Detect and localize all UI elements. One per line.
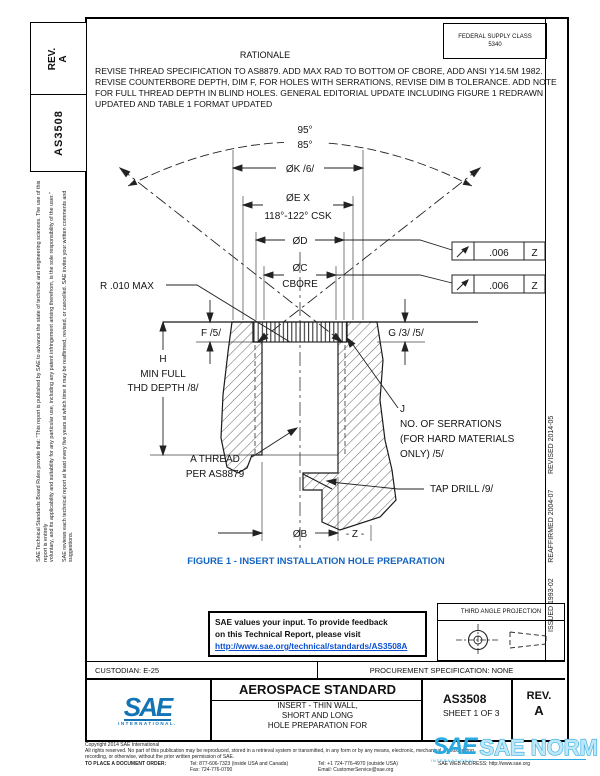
rationale-line: REVISE THREAD SPECIFICATION TO AS8879. A… (95, 66, 557, 77)
info-row: CUSTODIAN: E-25 PROCUREMENT SPECIFICATIO… (85, 661, 565, 679)
left-material-block (221, 322, 262, 473)
rationale-paragraph: REVISE THREAD SPECIFICATION TO AS8879. A… (95, 66, 557, 110)
figure-caption: FIGURE 1 - INSERT INSTALLATION HOLE PREP… (85, 556, 547, 567)
disclaimer-line: voluntary, and its applicability and sui… (49, 170, 56, 562)
fax: Fax: 724-776-0790 (190, 767, 318, 773)
left-margin-disclaimer: SAE Technical Standards Board Rules prov… (36, 170, 75, 562)
angle-dimension: 95° 85° (128, 121, 472, 186)
dia-k-label: ØK /6/ (286, 164, 315, 175)
revision-label: REV. (513, 690, 565, 703)
rev-box: REV. A (30, 22, 87, 96)
runout-arrow-icon (462, 247, 468, 253)
order-label: TO PLACE A DOCUMENT ORDER: (85, 761, 190, 773)
datum-z-label: - Z - (346, 529, 364, 540)
revision-cell: REV. A (513, 680, 565, 718)
rationale-title: RATIONALE (95, 50, 435, 60)
serrations-note: ONLY) /5/ (400, 449, 444, 460)
g-dim-label: G /3/ /5/ (388, 328, 424, 339)
sae-logo-text: SAE (124, 695, 171, 721)
email: Email: CustomerService@sae.org (318, 767, 438, 773)
sae-logo-subtext: INTERNATIONAL. (118, 721, 177, 726)
doc-number-side: AS3508 (52, 110, 64, 156)
custodian-cell: CUSTODIAN: E-25 (85, 662, 318, 679)
rationale-line: UPDATED AND TABLE 1 FORMAT UPDATED (95, 99, 557, 110)
rationale-line: FOR FULL THREAD DEPTH IN BLIND HOLES. GE… (95, 88, 557, 99)
fcf-value: .006 (489, 281, 509, 292)
document-number: AS3508 (443, 692, 523, 707)
figure-drawing: 95° 85° (85, 112, 547, 604)
tap-drill-label: TAP DRILL /9/ (430, 484, 493, 495)
h-dim-label: H (159, 354, 166, 365)
sae-logo: SAE INTERNATIONAL. (85, 680, 210, 740)
rev-label: REV. (47, 48, 58, 70)
watermark-text: SAE NORM (479, 738, 598, 758)
radius-max-label: R .010 MAX (100, 281, 154, 292)
title-block: SAE INTERNATIONAL. AEROSPACE STANDARD IN… (85, 678, 565, 740)
runout-arrow-icon (462, 280, 468, 286)
serration-band (253, 322, 347, 342)
angle-lower-label: 85° (297, 140, 312, 151)
dia-e-label: ØE X (286, 193, 310, 204)
standard-type: AEROSPACE STANDARD (212, 680, 423, 701)
document-number-cell: AS3508 SHEET 1 OF 3 (433, 680, 523, 720)
procurement-cell: PROCUREMENT SPECIFICATION: NONE (318, 662, 565, 679)
projection-box: THIRD ANGLE PROJECTION (437, 603, 565, 661)
thread-note: A THREAD (190, 454, 240, 465)
feedback-box: SAE values your input. To provide feedba… (208, 611, 427, 657)
cbore-label: CBORE (282, 279, 318, 290)
title-cell: AEROSPACE STANDARD INSERT - THIN WALL, S… (212, 680, 423, 731)
thread-note: PER AS8879 (186, 469, 245, 480)
feedback-line: SAE values your input. To provide feedba… (215, 616, 420, 628)
watermark-sae-subtext: INTERNATIONAL. (431, 758, 478, 763)
dia-d-label: ØD (293, 236, 308, 247)
dia-b-label: ØB (293, 529, 308, 540)
h-dim-note: THD DEPTH /8/ (127, 383, 198, 394)
rev-value: A (58, 48, 69, 70)
document-title-line: INSERT - THIN WALL, (212, 701, 423, 711)
document-title-line: HOLE PREPARATION FOR (212, 721, 423, 731)
serrations-note: J (400, 404, 405, 415)
document-title-line: SHORT AND LONG (212, 711, 423, 721)
feedback-line: on this Technical Report, please visit (215, 628, 420, 640)
sae-norm-watermark: SAE INTERNATIONAL. SAE NORM (431, 736, 598, 763)
projection-label: THIRD ANGLE PROJECTION (438, 604, 564, 621)
serrations-note: NO. OF SERRATIONS (400, 419, 502, 430)
fsc-label: FEDERAL SUPPLY CLASS (458, 33, 532, 41)
dia-c-label: ØC (293, 263, 308, 274)
third-angle-projection-icon (438, 621, 564, 659)
fcf-value: .006 (489, 248, 509, 259)
disclaimer-line: SAE Technical Standards Board Rules prov… (36, 170, 49, 562)
issue-history-text: ISSUED 1993-02 REAFFIRMED 2004-07 REVISE… (548, 162, 555, 632)
fsc-value: 5340 (488, 41, 501, 49)
feedback-link[interactable]: http://www.sae.org/technical/standards/A… (215, 641, 407, 651)
disclaimer-line: SAE reviews each technical report at lea… (62, 170, 75, 562)
fcf-datum: Z (531, 281, 537, 292)
federal-supply-class-box: FEDERAL SUPPLY CLASS 5340 (443, 23, 547, 59)
sheet-number: SHEET 1 OF 3 (443, 707, 523, 720)
angle-upper-label: 95° (297, 125, 312, 136)
serrations-note: (FOR HARD MATERIALS (400, 434, 515, 445)
h-dim-note: MIN FULL (140, 369, 186, 380)
right-material-block (303, 322, 396, 530)
revision-value: A (513, 703, 565, 718)
rationale-line: REVISE COUNTERBORE DEPTH, DIM F, FOR HOL… (95, 77, 557, 88)
watermark-sae-logo: SAE (432, 736, 475, 758)
f-dim-label: F /5/ (201, 328, 221, 339)
doc-number-box: AS3508 (30, 94, 87, 172)
csk-label: 118°-122° CSK (264, 211, 332, 222)
fcf-datum: Z (531, 248, 537, 259)
